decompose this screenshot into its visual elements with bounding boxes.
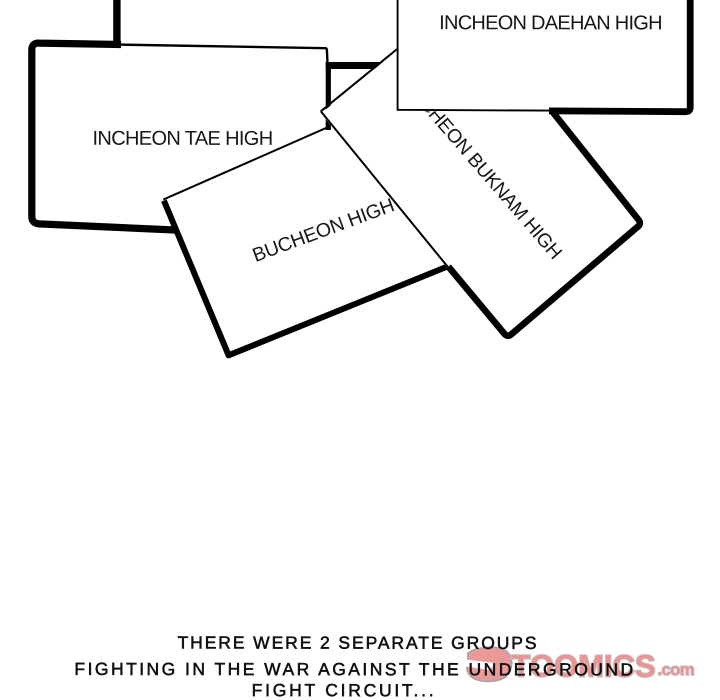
svg-text:THERE WERE 2 SEPARATE GROUPS: THERE WERE 2 SEPARATE GROUPS [178, 633, 539, 653]
svg-text:.com: .com [657, 661, 694, 679]
svg-text:INCHEON DAEHAN HIGH: INCHEON DAEHAN HIGH [439, 12, 662, 34]
svg-text:FIGHTING IN THE WAR AGAINST TH: FIGHTING IN THE WAR AGAINST THE UNDERGRO… [74, 659, 635, 680]
svg-text:INCHEON TAE HIGH: INCHEON TAE HIGH [92, 128, 272, 150]
svg-text:FIGHT CIRCUIT...: FIGHT CIRCUIT... [252, 680, 437, 700]
